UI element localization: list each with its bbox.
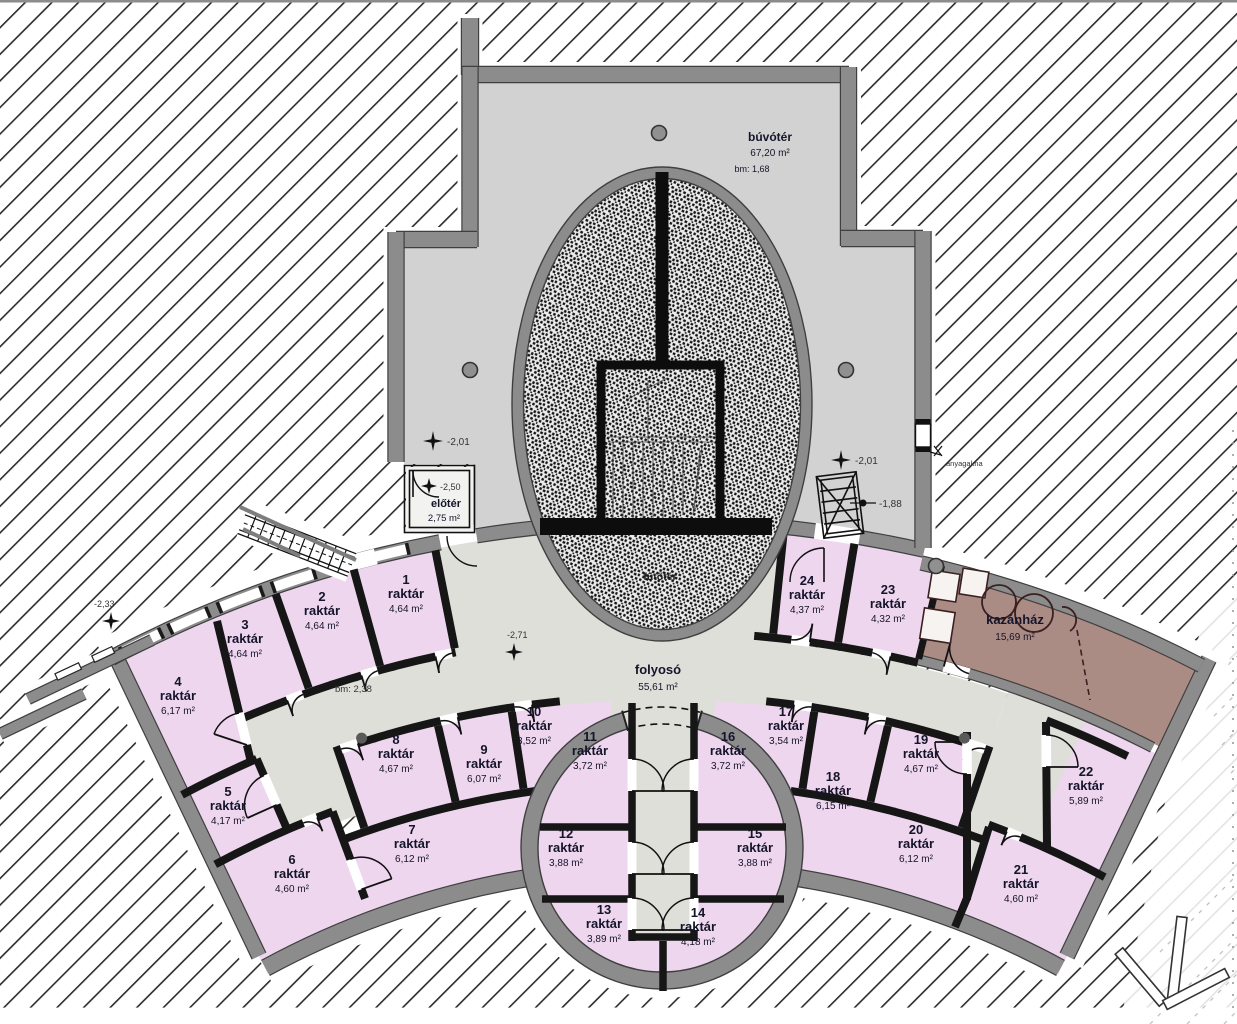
svg-text:5,89 m²: 5,89 m² (1069, 796, 1104, 807)
svg-text:11: 11 (583, 729, 597, 744)
svg-text:2,75 m²: 2,75 m² (428, 513, 460, 524)
svg-text:15: 15 (748, 826, 762, 841)
svg-text:4,64 m²: 4,64 m² (389, 604, 424, 615)
svg-text:4,64 m²: 4,64 m² (228, 649, 263, 660)
svg-text:18: 18 (826, 769, 840, 784)
svg-text:20: 20 (909, 822, 923, 837)
svg-text:búvótér: búvótér (748, 130, 792, 144)
svg-text:raktár: raktár (227, 631, 263, 646)
svg-text:3,52 m²: 3,52 m² (517, 736, 552, 747)
svg-text:raktár: raktár (768, 718, 804, 733)
svg-text:raktár: raktár (815, 783, 851, 798)
svg-text:raktár: raktár (304, 603, 340, 618)
svg-text:9: 9 (480, 742, 487, 757)
svg-text:4: 4 (174, 674, 182, 689)
svg-text:raktár: raktár (394, 836, 430, 851)
svg-text:3,54 m²: 3,54 m² (769, 736, 804, 747)
svg-text:folyosó: folyosó (635, 662, 681, 677)
svg-text:6,12 m²: 6,12 m² (395, 854, 430, 865)
svg-text:6,07 m²: 6,07 m² (467, 774, 502, 785)
svg-text:3,72 m²: 3,72 m² (573, 761, 608, 772)
svg-text:raktár: raktár (274, 866, 310, 881)
svg-text:raktár: raktár (903, 746, 939, 761)
svg-text:13: 13 (597, 902, 611, 917)
svg-text:-2,50: -2,50 (440, 482, 461, 492)
svg-text:67,20 m²: 67,20 m² (750, 148, 790, 159)
svg-text:raktár: raktár (737, 840, 773, 855)
svg-text:15,69 m²: 15,69 m² (995, 632, 1035, 643)
svg-text:19: 19 (914, 732, 928, 747)
svg-text:raktár: raktár (870, 596, 906, 611)
svg-text:raktár: raktár (586, 916, 622, 931)
svg-text:bm: 2,38: bm: 2,38 (335, 684, 372, 695)
svg-text:raktár: raktár (1003, 876, 1039, 891)
svg-text:24: 24 (800, 573, 815, 588)
svg-text:-2,01: -2,01 (447, 437, 470, 448)
svg-text:raktár: raktár (160, 688, 196, 703)
svg-text:3: 3 (241, 617, 248, 632)
svg-text:raktár: raktár (710, 743, 746, 758)
svg-text:12: 12 (559, 826, 573, 841)
svg-text:6,15 m²: 6,15 m² (816, 801, 851, 812)
svg-text:4,67 m²: 4,67 m² (379, 764, 414, 775)
svg-text:6,17 m²: 6,17 m² (161, 706, 196, 717)
svg-text:raktár: raktár (378, 746, 414, 761)
svg-text:4,17 m²: 4,17 m² (211, 816, 246, 827)
svg-text:anyagakna: anyagakna (946, 459, 984, 468)
svg-text:23: 23 (881, 582, 895, 597)
svg-text:2: 2 (318, 589, 325, 604)
svg-text:raktár: raktár (680, 919, 716, 934)
svg-text:raktár: raktár (572, 743, 608, 758)
svg-text:4,37 m²: 4,37 m² (790, 605, 825, 616)
svg-text:raktár: raktár (1068, 778, 1104, 793)
svg-text:fűtőtér: fűtőtér (643, 571, 676, 583)
svg-text:-1,88: -1,88 (879, 499, 902, 510)
svg-text:4,32 m²: 4,32 m² (871, 614, 906, 625)
svg-text:raktár: raktár (388, 586, 424, 601)
svg-text:-2,71: -2,71 (507, 630, 528, 640)
svg-text:6: 6 (288, 852, 295, 867)
svg-text:7: 7 (408, 822, 415, 837)
svg-text:kazánház: kazánház (986, 612, 1044, 627)
svg-text:4,64 m²: 4,64 m² (305, 621, 340, 632)
svg-text:raktár: raktár (548, 840, 584, 855)
svg-text:raktár: raktár (789, 587, 825, 602)
svg-text:3,88 m²: 3,88 m² (549, 858, 584, 869)
svg-text:3,72 m²: 3,72 m² (711, 761, 746, 772)
svg-text:előtér: előtér (431, 498, 462, 510)
svg-text:6,12 m²: 6,12 m² (899, 854, 934, 865)
svg-text:4,60 m²: 4,60 m² (275, 884, 310, 895)
svg-text:16: 16 (721, 729, 735, 744)
svg-text:3,88 m²: 3,88 m² (738, 858, 773, 869)
svg-text:5: 5 (224, 784, 231, 799)
svg-text:bm: 1,68: bm: 1,68 (734, 164, 769, 174)
svg-text:raktár: raktár (210, 798, 246, 813)
svg-text:21: 21 (1014, 862, 1028, 877)
svg-text:55,61 m²: 55,61 m² (638, 682, 678, 693)
svg-text:17: 17 (779, 704, 793, 719)
svg-text:raktár: raktár (516, 718, 552, 733)
svg-text:raktár: raktár (898, 836, 934, 851)
svg-text:3,89 m²: 3,89 m² (587, 934, 622, 945)
svg-text:10: 10 (527, 704, 541, 719)
svg-text:-2,33: -2,33 (94, 599, 115, 609)
svg-text:-2,01: -2,01 (855, 456, 878, 467)
svg-text:22: 22 (1079, 764, 1093, 779)
svg-text:raktár: raktár (466, 756, 502, 771)
svg-text:4,60 m²: 4,60 m² (1004, 894, 1039, 905)
svg-text:14: 14 (691, 905, 706, 920)
svg-text:8: 8 (392, 732, 399, 747)
svg-text:4,67 m²: 4,67 m² (904, 764, 939, 775)
svg-text:1: 1 (402, 572, 409, 587)
svg-text:4,18 m²: 4,18 m² (681, 937, 716, 948)
